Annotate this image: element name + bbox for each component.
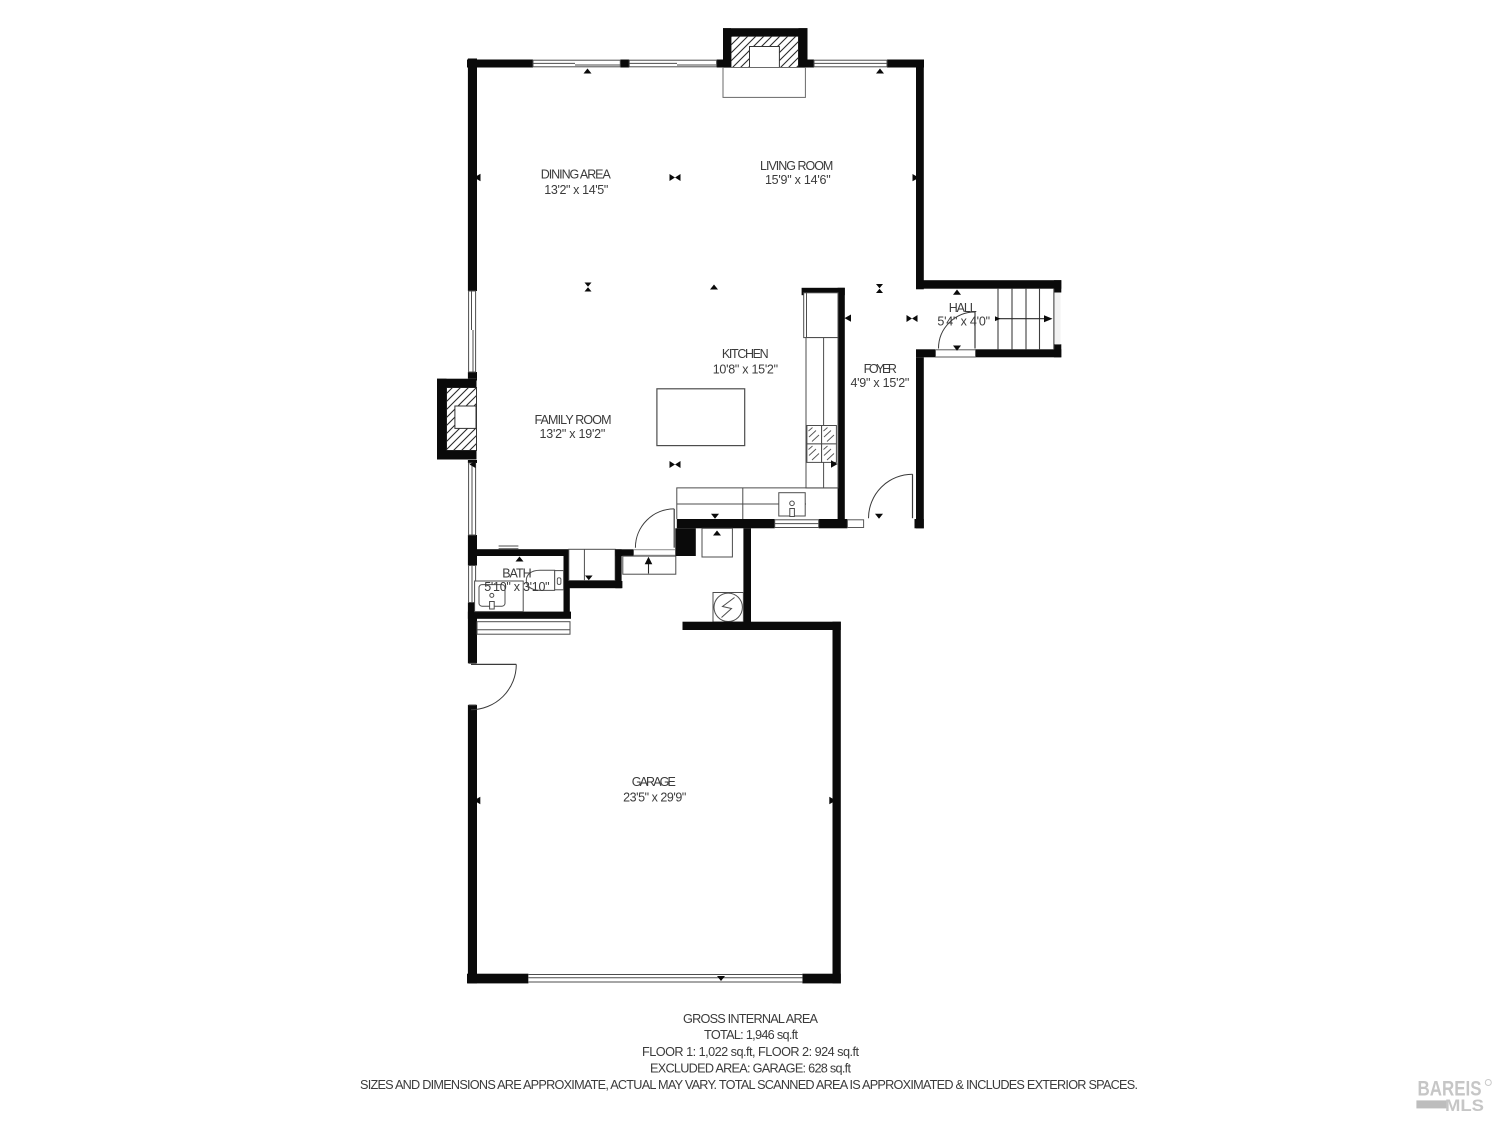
svg-text:DINING AREA: DINING AREA	[541, 168, 612, 182]
svg-text:4'9" x 15'2": 4'9" x 15'2"	[850, 376, 909, 390]
svg-text:13'2" x 19'2": 13'2" x 19'2"	[540, 427, 606, 441]
svg-text:23'5" x 29'9": 23'5" x 29'9"	[623, 790, 686, 804]
svg-text:GROSS INTERNAL AREA: GROSS INTERNAL AREA	[683, 1012, 819, 1026]
svg-text:15'9" x 14'6": 15'9" x 14'6"	[765, 173, 831, 187]
svg-text:HALL: HALL	[949, 301, 977, 315]
svg-text:10'8" x 15'2": 10'8" x 15'2"	[713, 363, 778, 377]
svg-text:LIVING ROOM: LIVING ROOM	[760, 159, 833, 173]
svg-text:FOYER: FOYER	[864, 362, 897, 376]
svg-text:BATH: BATH	[502, 567, 531, 581]
svg-text:13'2" x 14'5": 13'2" x 14'5"	[544, 183, 608, 197]
svg-text:KITCHEN: KITCHEN	[722, 347, 769, 361]
svg-text:5'4" x 4'0": 5'4" x 4'0"	[937, 315, 990, 329]
svg-text:FAMILY ROOM: FAMILY ROOM	[534, 413, 611, 427]
svg-text:FLOOR 1: 1,022 sq.ft, FLOOR 2:: FLOOR 1: 1,022 sq.ft, FLOOR 2: 924 sq.ft	[642, 1045, 859, 1059]
svg-text:5'10" x 3'10": 5'10" x 3'10"	[484, 580, 549, 594]
svg-text:EXCLUDED AREA: GARAGE: 628 sq.: EXCLUDED AREA: GARAGE: 628 sq.ft	[650, 1062, 851, 1076]
svg-text:GARAGE: GARAGE	[632, 775, 676, 789]
svg-text:SIZES AND DIMENSIONS ARE APPRO: SIZES AND DIMENSIONS ARE APPROXIMATE, AC…	[360, 1078, 1138, 1092]
svg-text:TOTAL: 1,946 sq.ft: TOTAL: 1,946 sq.ft	[704, 1028, 798, 1042]
svg-text:MLS: MLS	[1445, 1096, 1484, 1115]
